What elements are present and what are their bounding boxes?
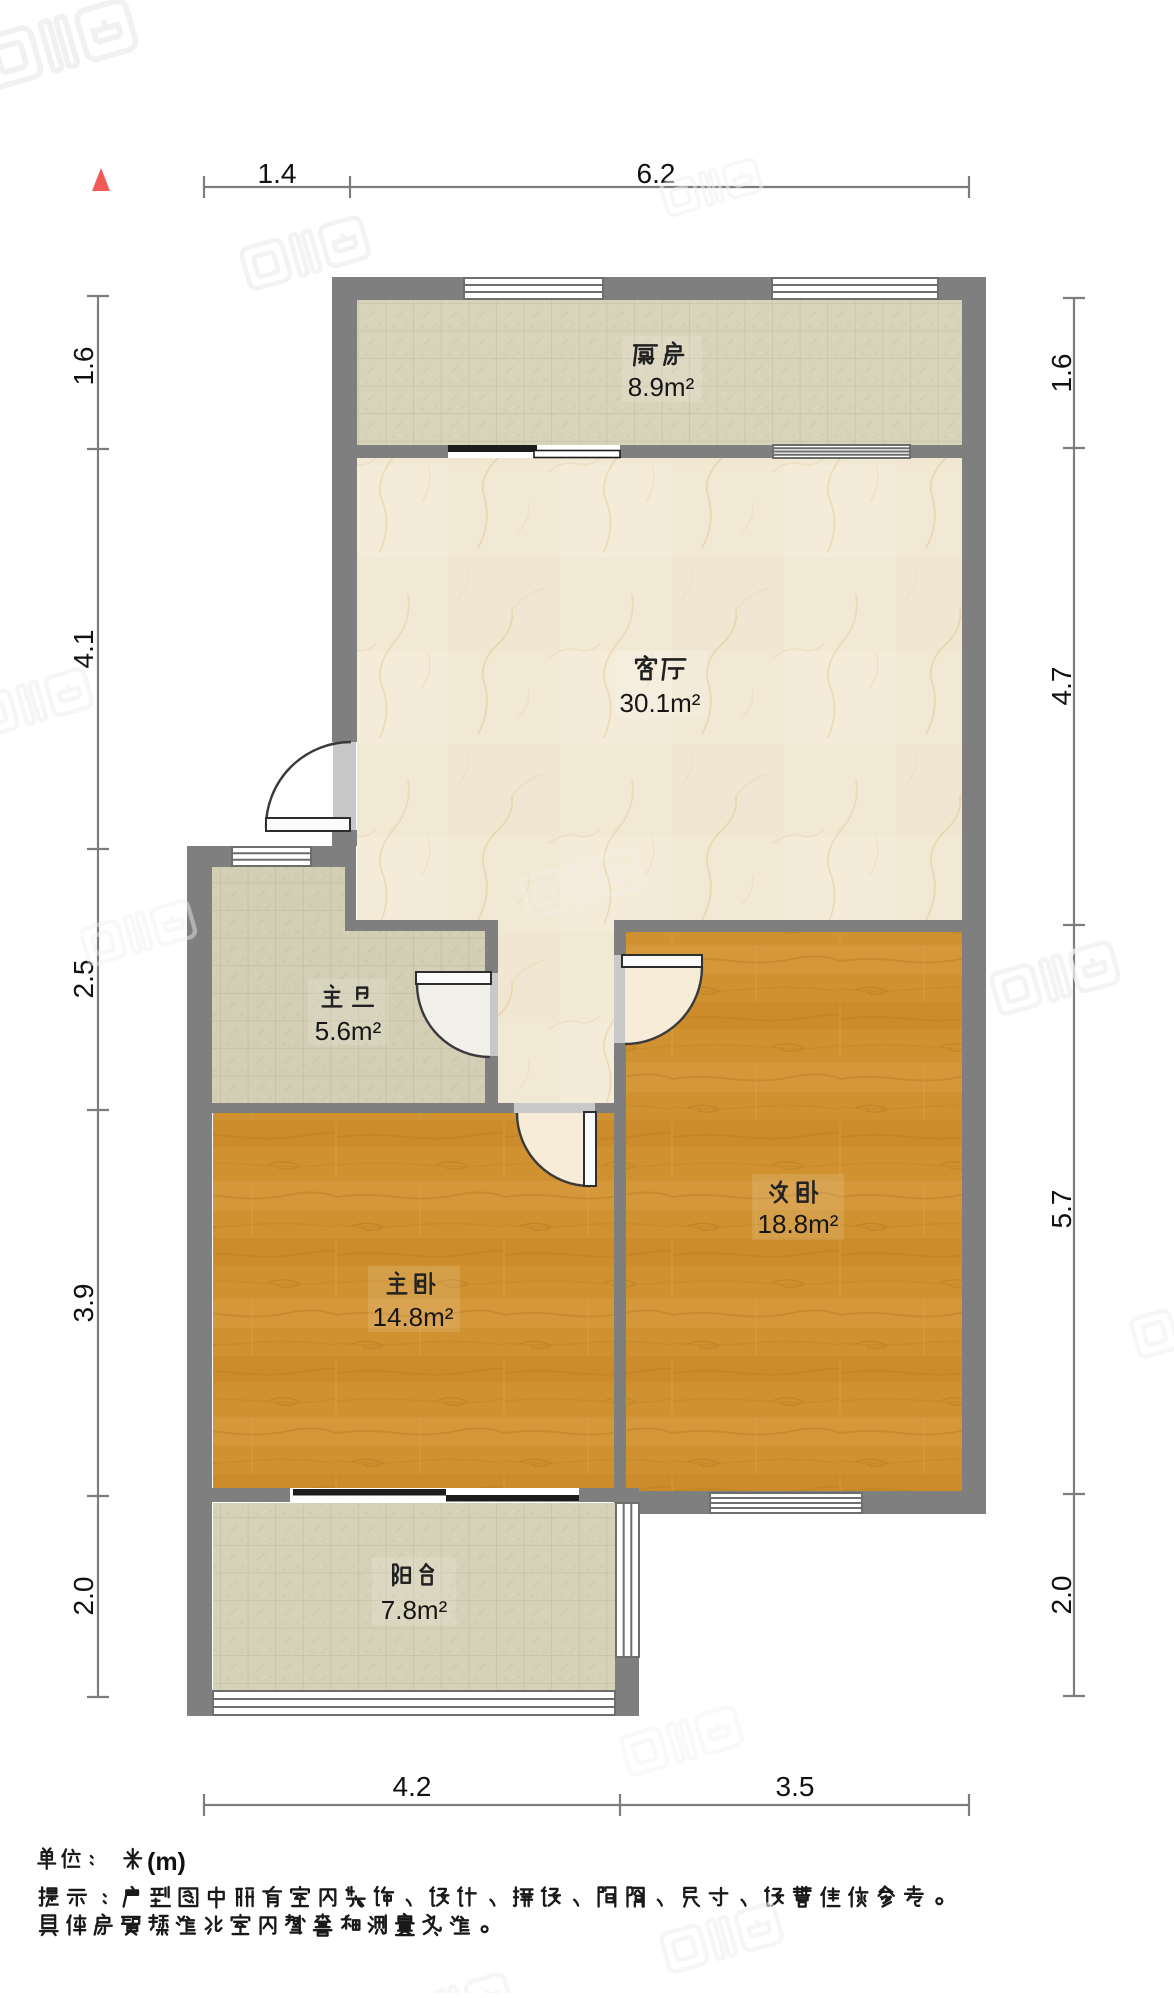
svg-text:5.6m²: 5.6m² [315,1016,382,1046]
svg-text:(m): (m) [147,1848,186,1876]
svg-text:18.8m²: 18.8m² [758,1209,839,1239]
svg-text:4.1: 4.1 [68,630,99,669]
svg-text:6.2: 6.2 [637,158,676,189]
svg-text:4.7: 4.7 [1046,667,1077,706]
svg-text:8.9m²: 8.9m² [628,372,695,402]
svg-text:30.1m²: 30.1m² [620,688,701,718]
svg-text:1.6: 1.6 [68,347,99,386]
svg-text:4.2: 4.2 [393,1771,432,1802]
svg-text:3.9: 3.9 [68,1284,99,1323]
svg-text:14.8m²: 14.8m² [373,1302,454,1332]
svg-text:5.7: 5.7 [1046,1190,1077,1229]
svg-text:2.0: 2.0 [1046,1576,1077,1615]
svg-text:1.6: 1.6 [1046,354,1077,393]
svg-text:1.4: 1.4 [258,158,297,189]
svg-text:7.8m²: 7.8m² [381,1595,448,1625]
svg-text:3.5: 3.5 [776,1771,815,1802]
svg-text:2.0: 2.0 [68,1577,99,1616]
